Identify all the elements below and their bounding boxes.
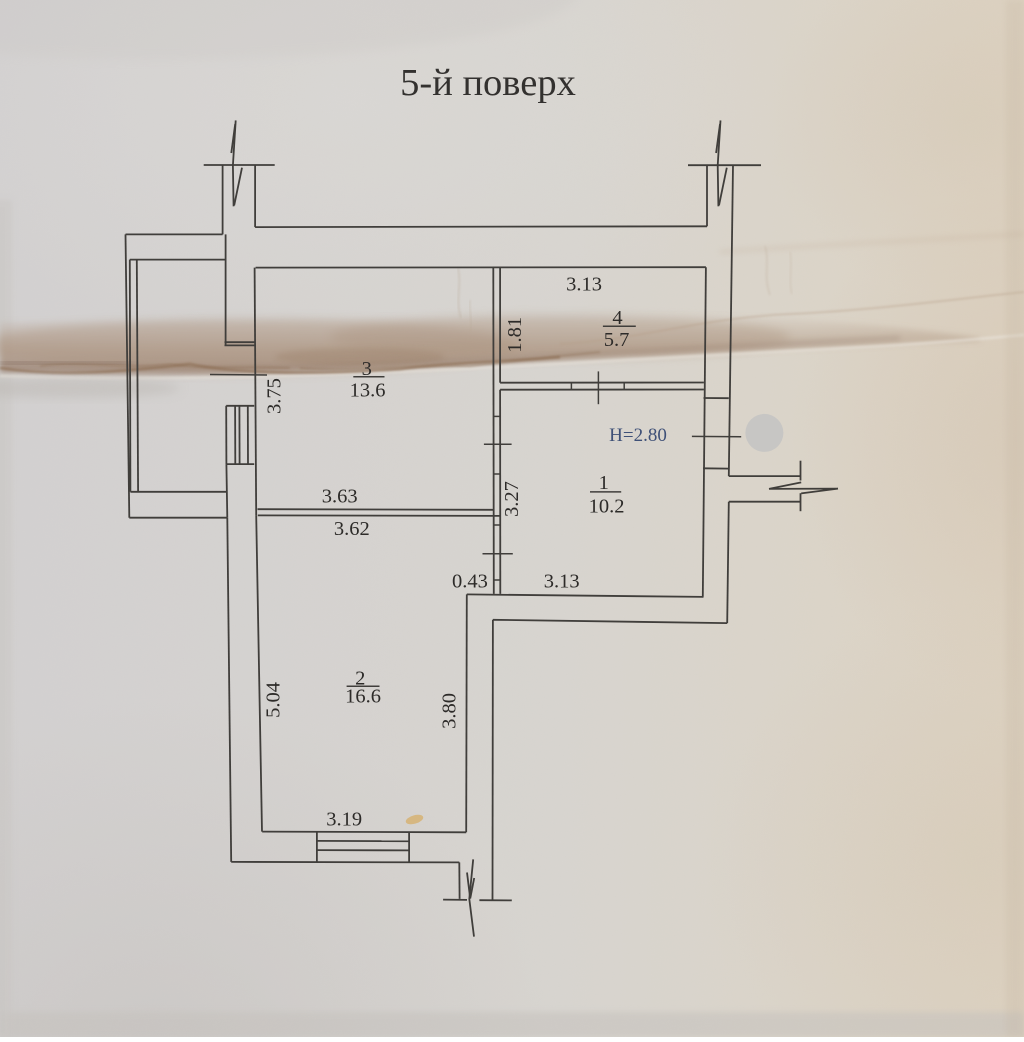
svg-text:3.63: 3.63	[322, 486, 358, 508]
svg-text:0.43: 0.43	[452, 571, 488, 593]
svg-text:1: 1	[599, 472, 609, 494]
svg-text:3.13: 3.13	[544, 571, 580, 593]
svg-text:3: 3	[362, 358, 372, 380]
svg-text:3.75: 3.75	[263, 378, 285, 414]
svg-text:3.62: 3.62	[334, 518, 370, 540]
svg-text:3.13: 3.13	[566, 274, 602, 296]
svg-text:3.27: 3.27	[501, 481, 523, 517]
svg-text:16.6: 16.6	[345, 685, 381, 707]
svg-text:10.2: 10.2	[589, 496, 625, 518]
svg-text:4: 4	[612, 307, 622, 329]
svg-text:5.04: 5.04	[263, 682, 285, 718]
svg-text:13.6: 13.6	[350, 379, 386, 401]
svg-text:5.7: 5.7	[604, 329, 630, 351]
svg-text:H=2.80: H=2.80	[609, 425, 667, 446]
svg-text:3.19: 3.19	[326, 809, 362, 831]
svg-text:1.81: 1.81	[504, 317, 526, 353]
svg-text:5-й поверх: 5-й поверх	[400, 62, 576, 104]
svg-text:3.80: 3.80	[438, 693, 460, 729]
